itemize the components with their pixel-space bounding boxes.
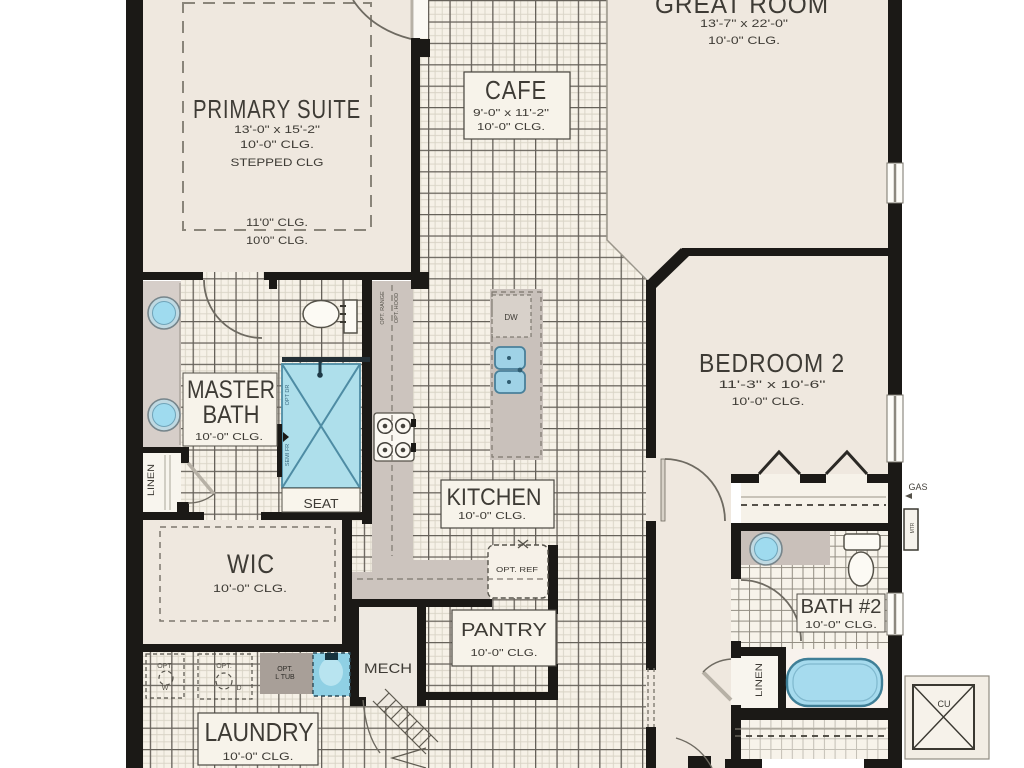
svg-text:OPT.: OPT.	[216, 663, 232, 670]
svg-text:10'-0" CLG.: 10'-0" CLG.	[458, 511, 526, 522]
svg-text:OPT.: OPT.	[157, 663, 173, 670]
svg-text:CAFE: CAFE	[485, 75, 547, 105]
svg-text:10'-0" CLG.: 10'-0" CLG.	[471, 648, 538, 659]
svg-text:OPT. REF: OPT. REF	[496, 565, 539, 574]
svg-text:OPT DR: OPT DR	[285, 385, 291, 406]
svg-text:OPT. RANGE: OPT. RANGE	[380, 291, 386, 325]
svg-text:D: D	[236, 685, 241, 692]
svg-text:KITCHEN: KITCHEN	[447, 484, 542, 511]
svg-text:STEPPED CLG: STEPPED CLG	[231, 157, 324, 169]
svg-text:11'-3" x 10'-6": 11'-3" x 10'-6"	[719, 379, 826, 391]
svg-text:9'-0" x 11'-2": 9'-0" x 11'-2"	[473, 108, 550, 119]
svg-text:LAUNDRY: LAUNDRY	[205, 717, 314, 747]
svg-text:10'-0" CLG.: 10'-0" CLG.	[477, 122, 545, 133]
svg-text:GREAT ROOM: GREAT ROOM	[655, 0, 829, 19]
svg-text:10'-0" CLG.: 10'-0" CLG.	[708, 35, 780, 47]
svg-text:10'-0" CLG.: 10'-0" CLG.	[240, 139, 314, 151]
svg-text:SEAT: SEAT	[304, 496, 339, 511]
svg-text:10'-0" CLG.: 10'-0" CLG.	[805, 620, 877, 631]
svg-text:MECH: MECH	[364, 660, 412, 676]
svg-text:LINEN: LINEN	[146, 464, 156, 496]
svg-text:MTR: MTR	[910, 522, 916, 533]
svg-text:BATH: BATH	[203, 401, 260, 429]
svg-text:SEMI FR: SEMI FR	[285, 444, 291, 466]
svg-text:PANTRY: PANTRY	[461, 620, 547, 640]
svg-text:13'-0" x 15'-2": 13'-0" x 15'-2"	[234, 124, 320, 136]
svg-text:10'-0" CLG.: 10'-0" CLG.	[195, 432, 263, 443]
svg-text:10'-0" CLG.: 10'-0" CLG.	[213, 583, 287, 595]
svg-text:OPT.: OPT.	[277, 666, 293, 673]
svg-text:10'-0" CLG.: 10'-0" CLG.	[223, 751, 294, 763]
svg-text:CU: CU	[938, 699, 951, 709]
svg-text:10'0" CLG.: 10'0" CLG.	[246, 235, 308, 247]
svg-text:DW: DW	[504, 313, 518, 322]
svg-text:LINEN: LINEN	[754, 663, 764, 697]
svg-text:10'-0" CLG.: 10'-0" CLG.	[732, 396, 805, 408]
svg-text:11'0" CLG.: 11'0" CLG.	[246, 217, 308, 229]
svg-text:PRIMARY SUITE: PRIMARY SUITE	[193, 94, 361, 124]
svg-text:GAS: GAS	[908, 482, 927, 492]
svg-text:OPT. HOOD: OPT. HOOD	[394, 293, 400, 323]
svg-text:W: W	[162, 685, 169, 692]
svg-text:BEDROOM 2: BEDROOM 2	[699, 348, 845, 378]
svg-text:BATH #2: BATH #2	[801, 596, 882, 618]
svg-text:MASTER: MASTER	[187, 376, 275, 404]
svg-text:L TUB: L TUB	[275, 674, 295, 681]
svg-text:WIC: WIC	[227, 549, 275, 579]
svg-text:13'-7" x 22'-0": 13'-7" x 22'-0"	[700, 18, 788, 30]
